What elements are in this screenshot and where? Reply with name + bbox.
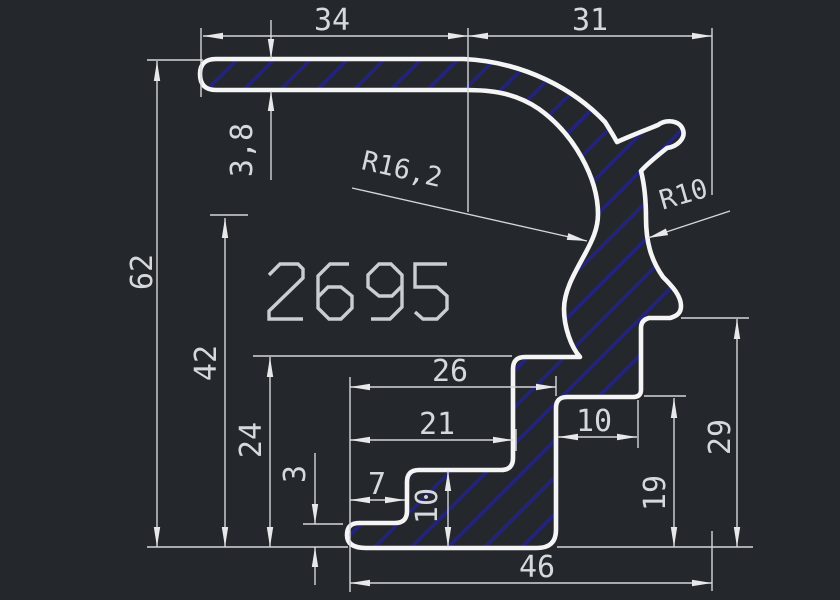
dim-29-label: 29 xyxy=(703,419,738,455)
radius-r10-label: R10 xyxy=(656,173,711,216)
dim-21-label: 21 xyxy=(419,407,455,442)
digit-9 xyxy=(368,264,402,319)
dim-42-label: 42 xyxy=(189,345,224,381)
profile-number-2695 xyxy=(269,264,447,319)
dim-19-label: 19 xyxy=(638,475,673,511)
dim-31-label: 31 xyxy=(572,3,608,38)
dim-7-label: 7 xyxy=(368,467,386,502)
dim-46-label: 46 xyxy=(519,550,555,585)
radius-r162-label: R16,2 xyxy=(359,145,445,193)
dim-34-label: 34 xyxy=(314,3,350,38)
digit-6 xyxy=(318,264,352,319)
dim-10-step-label: 10 xyxy=(576,404,612,439)
digit-5 xyxy=(415,264,447,319)
dim-26-label: 26 xyxy=(432,354,468,389)
leader-r162 xyxy=(352,188,587,241)
profile-outline xyxy=(200,59,684,548)
digit-2 xyxy=(269,264,303,319)
cad-drawing: 34 31 26 21 10 7 46 62 42 24 3 3,8 10 19… xyxy=(0,0,840,600)
dim-62-label: 62 xyxy=(125,254,160,290)
dim-10-foot-label: 10 xyxy=(410,488,445,524)
dim-3-label: 3 xyxy=(278,465,313,483)
dim-24-label: 24 xyxy=(234,422,269,458)
dim-38-label: 3,8 xyxy=(225,123,260,177)
cad-drawing-canvas[interactable]: 34 31 26 21 10 7 46 62 42 24 3 3,8 10 19… xyxy=(0,0,840,600)
